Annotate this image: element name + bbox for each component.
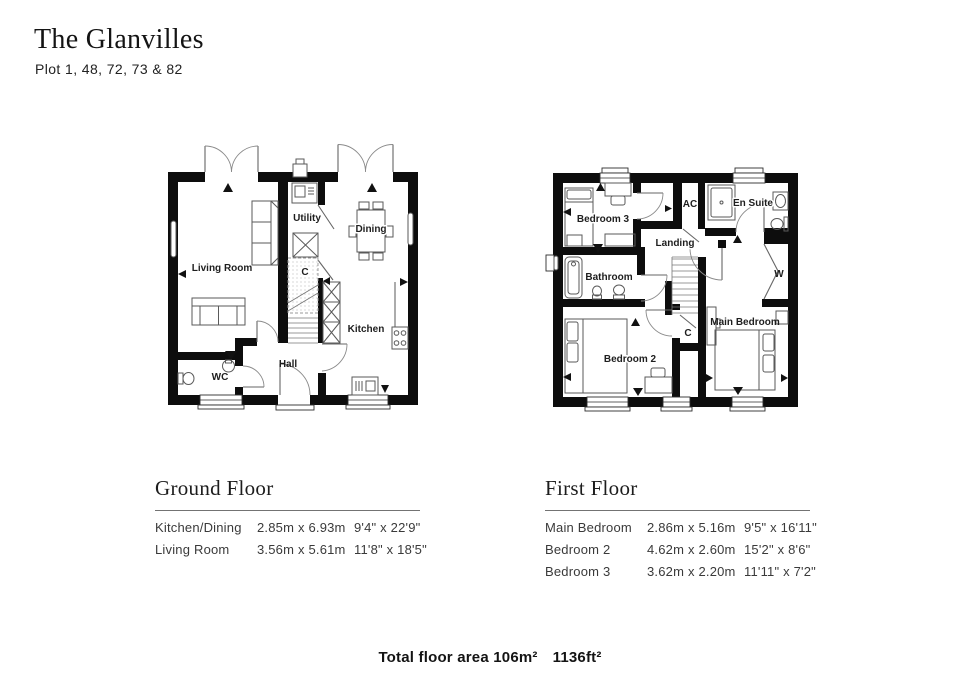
bed-main-bedroom: [715, 330, 775, 390]
room-label-ensuite: En Suite: [733, 198, 773, 209]
ensuite-basin-icon: [773, 192, 788, 210]
bedroom3-door: [637, 193, 663, 219]
room-label-ac: AC: [683, 199, 697, 210]
shower-icon: [708, 185, 735, 220]
first-floor-table: Main Bedroom 2.86m x 5.16m 9'5" x 16'11"…: [545, 516, 817, 582]
sink-unit: [352, 377, 378, 395]
kitchen-tall-units: [323, 282, 340, 343]
window-dining-right: [408, 213, 413, 245]
room-label-dining: Dining: [355, 224, 386, 235]
divider: [155, 510, 420, 511]
room-label-wardrobe: W: [774, 269, 784, 280]
french-doors-living-room: [205, 146, 258, 172]
imperial-cell: 9'5" x 16'11": [744, 516, 817, 538]
bath-icon: [565, 257, 582, 298]
first-floor-plan: Bedroom 3 AC En Suite Landing Bathroom W…: [545, 155, 810, 415]
cupboard-door: [318, 260, 333, 280]
window-hall-bottom: [661, 397, 692, 411]
imperial-cell: 11'8" x 18'5": [354, 538, 427, 560]
table-row: Kitchen/Dining 2.85m x 6.93m 9'4" x 22'9…: [155, 516, 427, 538]
imperial-cell: 11'11" x 7'2": [744, 560, 817, 582]
basin-icon: [223, 360, 235, 372]
floorplan-page: The Glanvilles Plot 1, 48, 72, 73 & 82: [0, 0, 980, 694]
room-label-living-room: Living Room: [192, 263, 253, 274]
first-floor-dimensions: First Floor Main Bedroom 2.86m x 5.16m 9…: [545, 476, 840, 582]
metric-cell: 2.85m x 6.93m: [257, 516, 354, 538]
window-main-bedroom-bottom: [730, 397, 765, 411]
meter-box: [293, 159, 307, 177]
drawers-bedroom3: [567, 235, 582, 246]
room-name-cell: Kitchen/Dining: [155, 516, 257, 538]
window-bedroom2-bottom: [585, 397, 630, 411]
room-name-cell: Living Room: [155, 538, 257, 560]
living-room-door: [257, 321, 278, 342]
room-name-cell: Bedroom 3: [545, 560, 647, 582]
room-label-bedroom3: Bedroom 3: [577, 214, 630, 225]
room-label-kitchen: Kitchen: [348, 324, 385, 335]
plot-subtitle: Plot 1, 48, 72, 73 & 82: [35, 61, 183, 77]
room-label-cupboard: C: [684, 328, 691, 339]
ground-floor-dimensions: Ground Floor Kitchen/Dining 2.85m x 6.93…: [155, 476, 427, 560]
total-area-imperial: 1136ft²: [553, 649, 602, 666]
window-ensuite-top: [733, 168, 765, 183]
sofa-small: [192, 298, 245, 325]
room-label-cupboard: C: [301, 267, 308, 278]
metric-cell: 4.62m x 2.60m: [647, 538, 744, 560]
metric-cell: 3.62m x 2.20m: [647, 560, 744, 582]
table-row: Living Room 3.56m x 5.61m 11'8" x 18'5": [155, 538, 427, 560]
imperial-cell: 15'2" x 8'6": [744, 538, 817, 560]
ground-floor-plan: Living Room Utility Dining C Kitchen Hal…: [160, 133, 430, 415]
wc-door: [243, 366, 264, 387]
table-row: Bedroom 3 3.62m x 2.20m 11'11" x 7'2": [545, 560, 817, 582]
room-label-wc: WC: [212, 372, 229, 383]
desk-bedroom3: [605, 183, 631, 205]
window-living-room-left: [171, 221, 176, 257]
table-row: Bedroom 2 4.62m x 2.60m 15'2" x 8'6": [545, 538, 817, 560]
utility-counter: [293, 233, 318, 257]
divider: [545, 510, 810, 511]
desk-bedroom2: [645, 368, 672, 393]
ground-floor-heading: Ground Floor: [155, 476, 427, 501]
room-label-bathroom: Bathroom: [585, 272, 632, 283]
basin-icon: [593, 286, 602, 299]
room-label-utility: Utility: [293, 213, 321, 224]
front-door: [276, 364, 314, 410]
bathroom-door: [641, 275, 667, 301]
toilet-icon: [178, 373, 194, 385]
room-name-cell: Bedroom 2: [545, 538, 647, 560]
toilet-icon: [614, 285, 625, 299]
hob-icon: [392, 327, 408, 349]
window-kitchen-bottom: [346, 395, 390, 409]
window-bathroom-left: [546, 255, 558, 271]
ground-floor-table: Kitchen/Dining 2.85m x 6.93m 9'4" x 22'9…: [155, 516, 427, 560]
metric-cell: 3.56m x 5.61m: [257, 538, 354, 560]
room-label-bedroom2: Bedroom 2: [604, 354, 657, 365]
room-label-hall: Hall: [279, 359, 298, 370]
room-label-landing: Landing: [656, 238, 695, 249]
washing-machine: [292, 183, 317, 203]
room-label-main-bedroom: Main Bedroom: [710, 317, 780, 328]
french-doors-dining: [338, 145, 393, 173]
total-area-metric: Total floor area 106m²: [378, 649, 537, 666]
kitchen-door: [322, 344, 347, 371]
cupboard-door: [680, 315, 696, 328]
window-bedroom3-top: [600, 168, 630, 183]
sofa-large: [252, 201, 278, 265]
page-title: The Glanvilles: [34, 24, 204, 56]
first-floor-heading: First Floor: [545, 476, 840, 501]
metric-cell: 2.86m x 5.16m: [647, 516, 744, 538]
room-name-cell: Main Bedroom: [545, 516, 647, 538]
chest-bedroom3: [605, 234, 635, 246]
imperial-cell: 9'4" x 22'9": [354, 516, 427, 538]
window-wc-bottom: [198, 395, 244, 409]
total-floor-area: Total floor area 106m²1136ft²: [0, 649, 980, 666]
table-row: Main Bedroom 2.86m x 5.16m 9'5" x 16'11": [545, 516, 817, 538]
